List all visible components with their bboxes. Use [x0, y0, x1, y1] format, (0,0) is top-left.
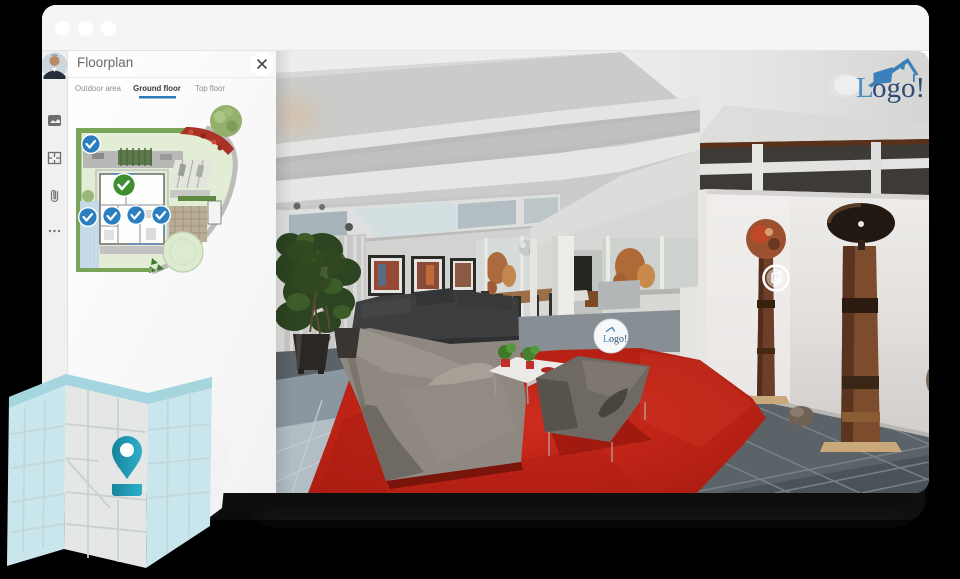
svg-text:ogo!: ogo!	[609, 334, 627, 345]
svg-text:Top floor: Top floor	[195, 84, 225, 93]
svg-text:Ground floor: Ground floor	[133, 84, 181, 93]
svg-text:Floorplan: Floorplan	[77, 55, 133, 70]
svg-text:Outdoor area: Outdoor area	[75, 84, 122, 93]
